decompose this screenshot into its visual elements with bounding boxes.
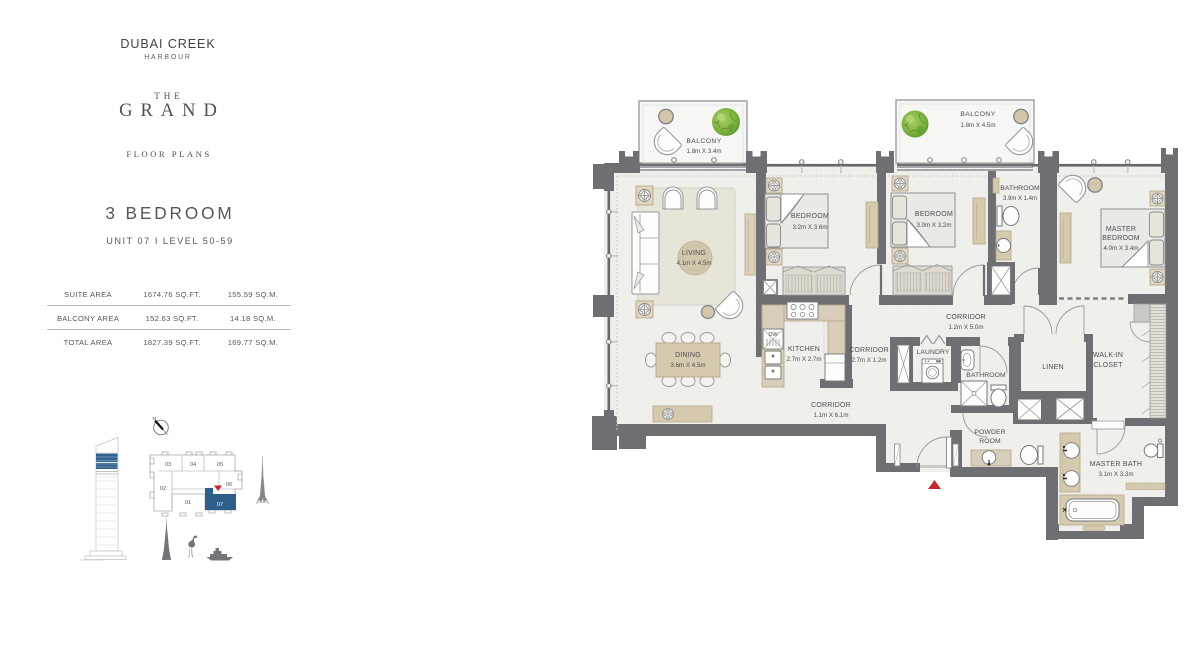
svg-text:FLOOR PLANS: FLOOR PLANS — [126, 149, 211, 159]
svg-text:1674.76 SQ.FT.: 1674.76 SQ.FT. — [143, 290, 200, 299]
svg-text:155.59 SQ.M.: 155.59 SQ.M. — [228, 290, 278, 299]
svg-text:BATHROOM: BATHROOM — [1000, 185, 1040, 192]
svg-text:1.8m X 4.5m: 1.8m X 4.5m — [960, 122, 995, 129]
svg-text:GRAND: GRAND — [119, 101, 225, 121]
svg-text:N: N — [153, 416, 156, 421]
svg-text:LIVING: LIVING — [682, 250, 706, 257]
svg-text:BATHROOM: BATHROOM — [966, 372, 1006, 379]
svg-text:MASTER: MASTER — [1106, 226, 1136, 233]
svg-text:14.18 SQ.M.: 14.18 SQ.M. — [230, 314, 276, 323]
svg-text:4.0m X 3.4m: 4.0m X 3.4m — [1103, 245, 1138, 252]
svg-text:3 BEDROOM: 3 BEDROOM — [105, 203, 234, 223]
svg-text:4.1m X 4.5m: 4.1m X 4.5m — [676, 260, 711, 267]
svg-text:DW: DW — [768, 332, 778, 338]
svg-text:LAUNDRY: LAUNDRY — [916, 349, 949, 356]
svg-text:CORRIDOR: CORRIDOR — [946, 314, 986, 321]
svg-text:3.6m X 4.5m: 3.6m X 4.5m — [670, 362, 705, 369]
svg-text:WALK-IN: WALK-IN — [1093, 352, 1123, 359]
svg-text:3.0m X 3.2m: 3.0m X 3.2m — [916, 222, 951, 229]
svg-text:02: 02 — [160, 486, 166, 492]
svg-text:MASTER BATH: MASTER BATH — [1090, 461, 1143, 468]
svg-text:BEDROOM: BEDROOM — [915, 211, 953, 218]
svg-text:THE: THE — [154, 91, 184, 101]
svg-text:1.1m X 6.1m: 1.1m X 6.1m — [813, 412, 848, 419]
svg-text:ROOM: ROOM — [979, 438, 1001, 445]
svg-text:3.2m X 3.6m: 3.2m X 3.6m — [792, 224, 827, 231]
svg-text:SUITE AREA: SUITE AREA — [64, 290, 112, 299]
svg-text:3.9m X 1.4m: 3.9m X 1.4m — [1003, 196, 1037, 202]
svg-text:1827.39 SQ.FT.: 1827.39 SQ.FT. — [143, 338, 200, 347]
svg-text:2.7m X 1.2m: 2.7m X 1.2m — [851, 357, 886, 364]
svg-text:03: 03 — [165, 462, 171, 468]
svg-text:BEDROOM: BEDROOM — [791, 213, 829, 220]
svg-text:1.2m X 5.0m: 1.2m X 5.0m — [948, 324, 983, 331]
svg-text:BALCONY: BALCONY — [686, 138, 721, 145]
svg-text:POWDER: POWDER — [974, 429, 1005, 436]
svg-text:DINING: DINING — [675, 352, 701, 359]
svg-text:KITCHEN: KITCHEN — [788, 346, 820, 353]
svg-text:3.1m X 3.3m: 3.1m X 3.3m — [1098, 471, 1133, 478]
svg-text:HARBOUR: HARBOUR — [144, 54, 192, 61]
svg-text:BALCONY AREA: BALCONY AREA — [57, 314, 120, 323]
svg-text:1.8m X 3.4m: 1.8m X 3.4m — [686, 148, 721, 155]
svg-text:04: 04 — [190, 462, 196, 468]
svg-text:CORRIDOR: CORRIDOR — [849, 347, 889, 354]
svg-text:CORRIDOR: CORRIDOR — [811, 402, 851, 409]
svg-text:01: 01 — [185, 500, 191, 506]
svg-text:BEDROOM: BEDROOM — [1102, 235, 1140, 242]
svg-text:152.63 SQ.FT.: 152.63 SQ.FT. — [146, 314, 199, 323]
svg-text:LINEN: LINEN — [1042, 364, 1064, 371]
svg-text:06: 06 — [226, 482, 232, 488]
svg-text:169.77 SQ.M.: 169.77 SQ.M. — [228, 338, 278, 347]
svg-text:BALCONY: BALCONY — [960, 111, 995, 118]
svg-text:CLOSET: CLOSET — [1093, 362, 1123, 369]
svg-text:07: 07 — [217, 502, 223, 508]
svg-text:05: 05 — [217, 462, 223, 468]
svg-text:TOTAL AREA: TOTAL AREA — [64, 338, 113, 347]
svg-text:DUBAI CREEK: DUBAI CREEK — [120, 37, 215, 51]
svg-text:2.7m X 2.7m: 2.7m X 2.7m — [786, 356, 821, 363]
svg-text:UNIT 07 I LEVEL 50-59: UNIT 07 I LEVEL 50-59 — [106, 236, 234, 246]
